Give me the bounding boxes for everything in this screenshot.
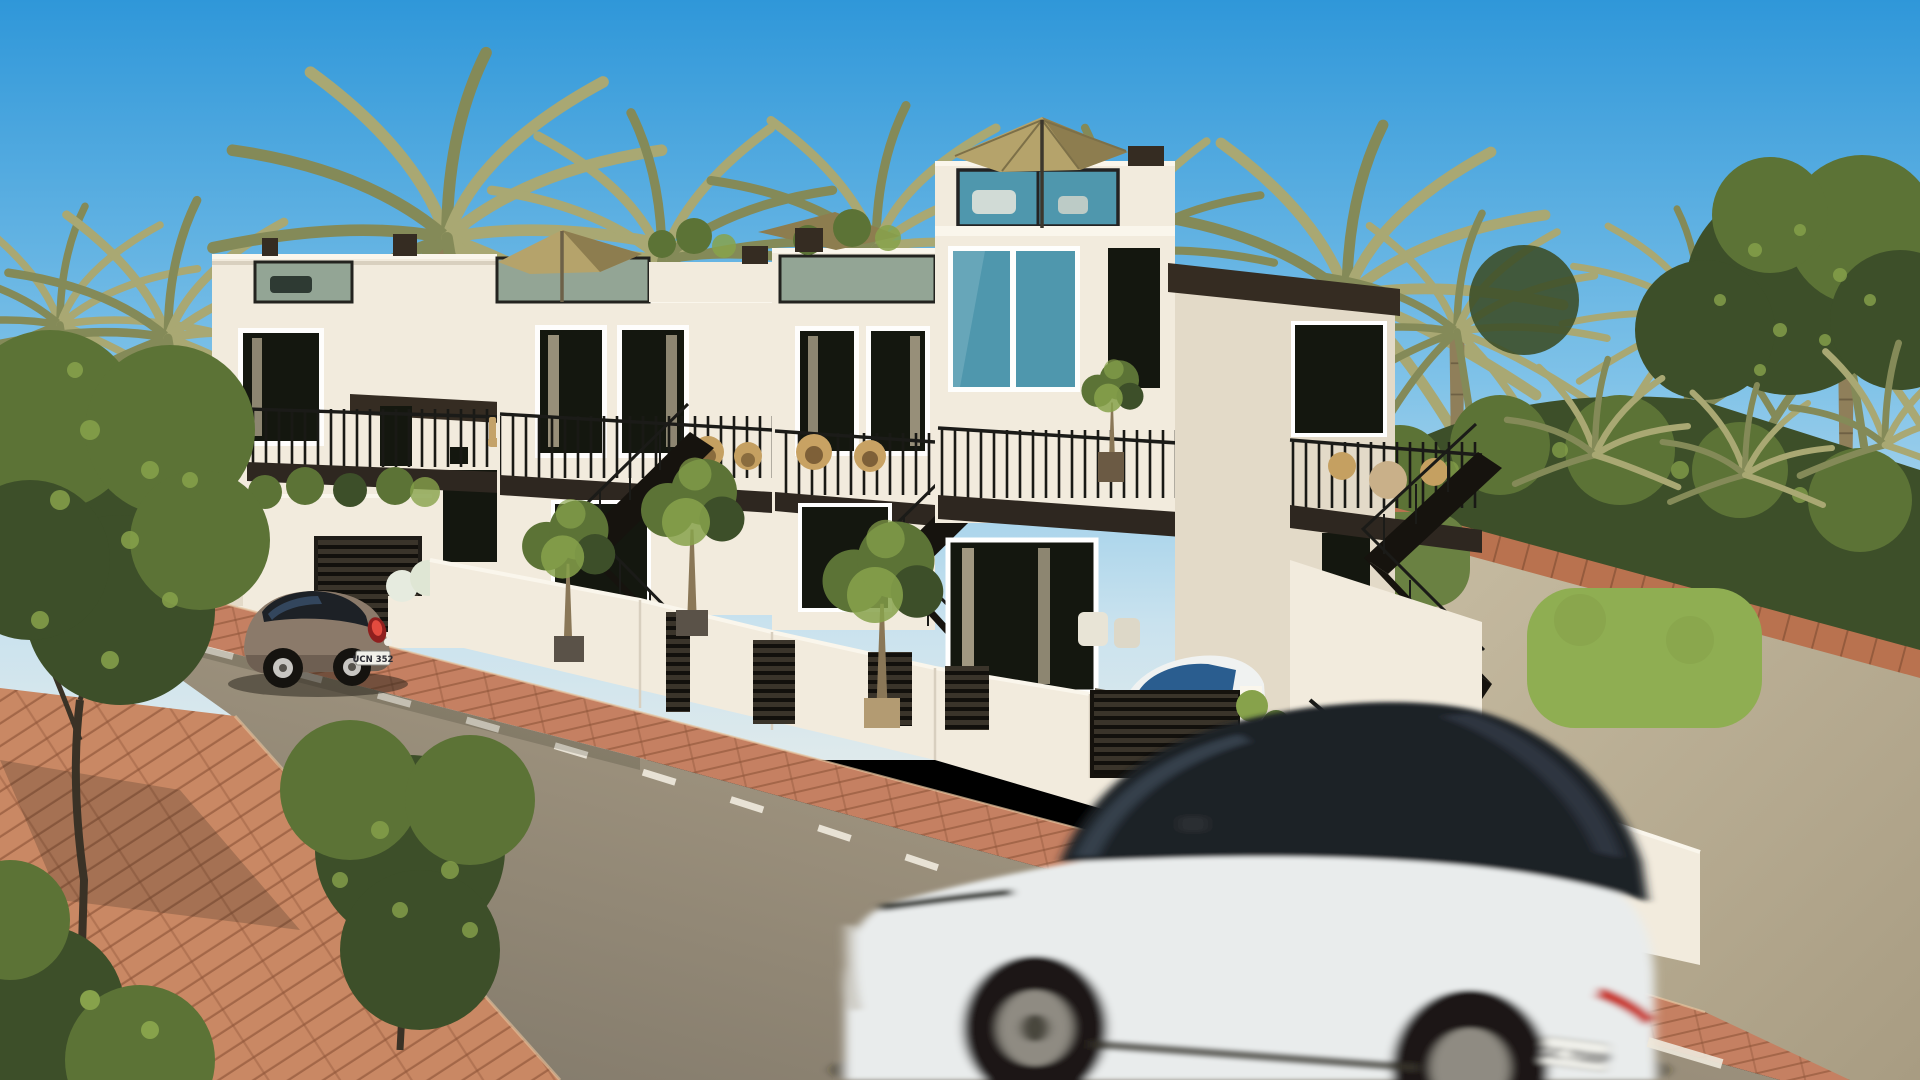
terrace-chair <box>1078 612 1108 646</box>
beetle-license-plate: UCN 352 <box>353 651 394 665</box>
scene: UCN 352 <box>0 0 1920 1080</box>
wing-window <box>1293 323 1385 435</box>
render-viewport: UCN 352 <box>0 0 1920 1080</box>
svg-text:UCN 352: UCN 352 <box>353 655 394 665</box>
louver-vent <box>945 666 989 730</box>
suv-mirror <box>1178 816 1208 832</box>
chimney <box>393 234 417 256</box>
house1-roof-deck <box>255 262 352 302</box>
chimney <box>262 238 278 256</box>
terrace-chair <box>1114 618 1140 648</box>
chimney <box>1128 146 1164 166</box>
louver-vent <box>753 640 795 724</box>
